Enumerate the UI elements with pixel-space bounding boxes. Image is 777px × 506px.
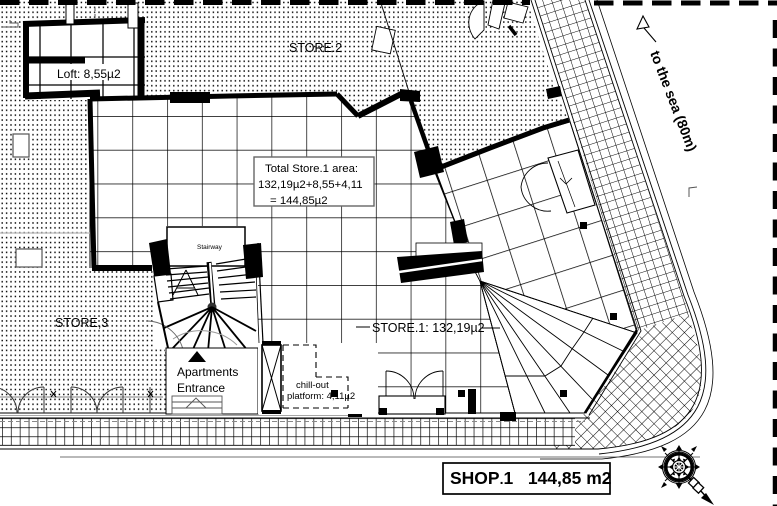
svg-text:STORE.2: STORE.2 <box>289 41 342 55</box>
svg-text:Entrance: Entrance <box>177 381 225 395</box>
svg-text:Apartments: Apartments <box>177 365 238 379</box>
svg-text:132,19µ2+8,55+4,11: 132,19µ2+8,55+4,11 <box>258 179 363 191</box>
svg-text:STORE.1: 132,19µ2: STORE.1: 132,19µ2 <box>372 321 485 335</box>
svg-text:Loft: 8,55µ2: Loft: 8,55µ2 <box>57 67 121 81</box>
svg-text:STORE,3: STORE,3 <box>55 316 108 330</box>
svg-text:chill-out: chill-out <box>296 380 329 391</box>
svg-text:Total Store.1 area:: Total Store.1 area: <box>265 163 358 175</box>
svg-text:= 144,85µ2: = 144,85µ2 <box>270 195 328 207</box>
svg-text:platform: 4,11µ2: platform: 4,11µ2 <box>287 391 355 402</box>
svg-text:SHOP.1 144,85 m2: SHOP.1 144,85 m2 <box>450 468 612 488</box>
svg-text:Stairway: Stairway <box>197 244 223 251</box>
